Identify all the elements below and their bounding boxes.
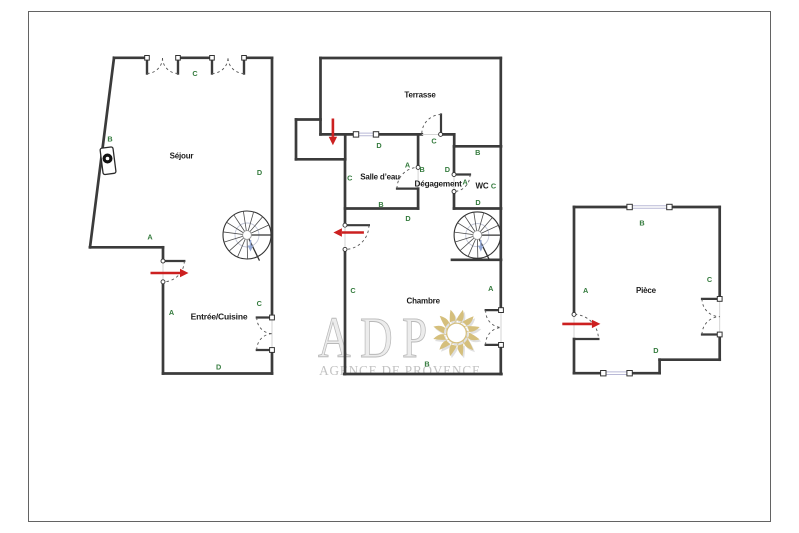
- svg-text:C: C: [350, 286, 356, 295]
- svg-text:Salle d’eau: Salle d’eau: [360, 173, 400, 182]
- svg-text:A: A: [463, 177, 469, 186]
- svg-text:D: D: [405, 214, 410, 223]
- svg-text:Pièce: Pièce: [636, 286, 657, 295]
- svg-text:A: A: [488, 284, 494, 293]
- svg-text:A: A: [147, 232, 153, 241]
- svg-text:B: B: [424, 360, 429, 369]
- svg-text:Entrée/Cuisine: Entrée/Cuisine: [191, 311, 248, 321]
- svg-text:C: C: [347, 174, 353, 183]
- svg-text:C: C: [707, 275, 713, 284]
- svg-text:D: D: [653, 346, 658, 355]
- svg-text:D: D: [376, 141, 381, 150]
- svg-text:A: A: [405, 161, 411, 170]
- svg-text:B: B: [420, 165, 425, 174]
- svg-text:WC: WC: [476, 182, 489, 191]
- svg-text:A: A: [583, 286, 589, 295]
- svg-text:B: B: [475, 148, 480, 157]
- svg-text:B: B: [639, 219, 644, 228]
- svg-text:A: A: [169, 308, 175, 317]
- svg-text:D: D: [475, 198, 480, 207]
- svg-text:D: D: [216, 362, 221, 371]
- svg-text:B: B: [378, 200, 383, 209]
- svg-text:B: B: [107, 135, 112, 144]
- svg-text:Dégagement: Dégagement: [415, 179, 463, 188]
- svg-text:C: C: [431, 137, 437, 146]
- svg-text:Séjour: Séjour: [170, 152, 194, 161]
- svg-text:ADP: ADP: [318, 307, 437, 371]
- svg-text:C: C: [491, 182, 497, 191]
- svg-text:D: D: [257, 168, 262, 177]
- svg-text:C: C: [192, 69, 198, 78]
- svg-text:C: C: [257, 299, 263, 308]
- svg-text:AGENCE DE PROVENCE: AGENCE DE PROVENCE: [319, 363, 481, 378]
- svg-text:Chambre: Chambre: [407, 297, 441, 306]
- svg-text:Terrasse: Terrasse: [404, 91, 436, 100]
- svg-text:D: D: [445, 165, 450, 174]
